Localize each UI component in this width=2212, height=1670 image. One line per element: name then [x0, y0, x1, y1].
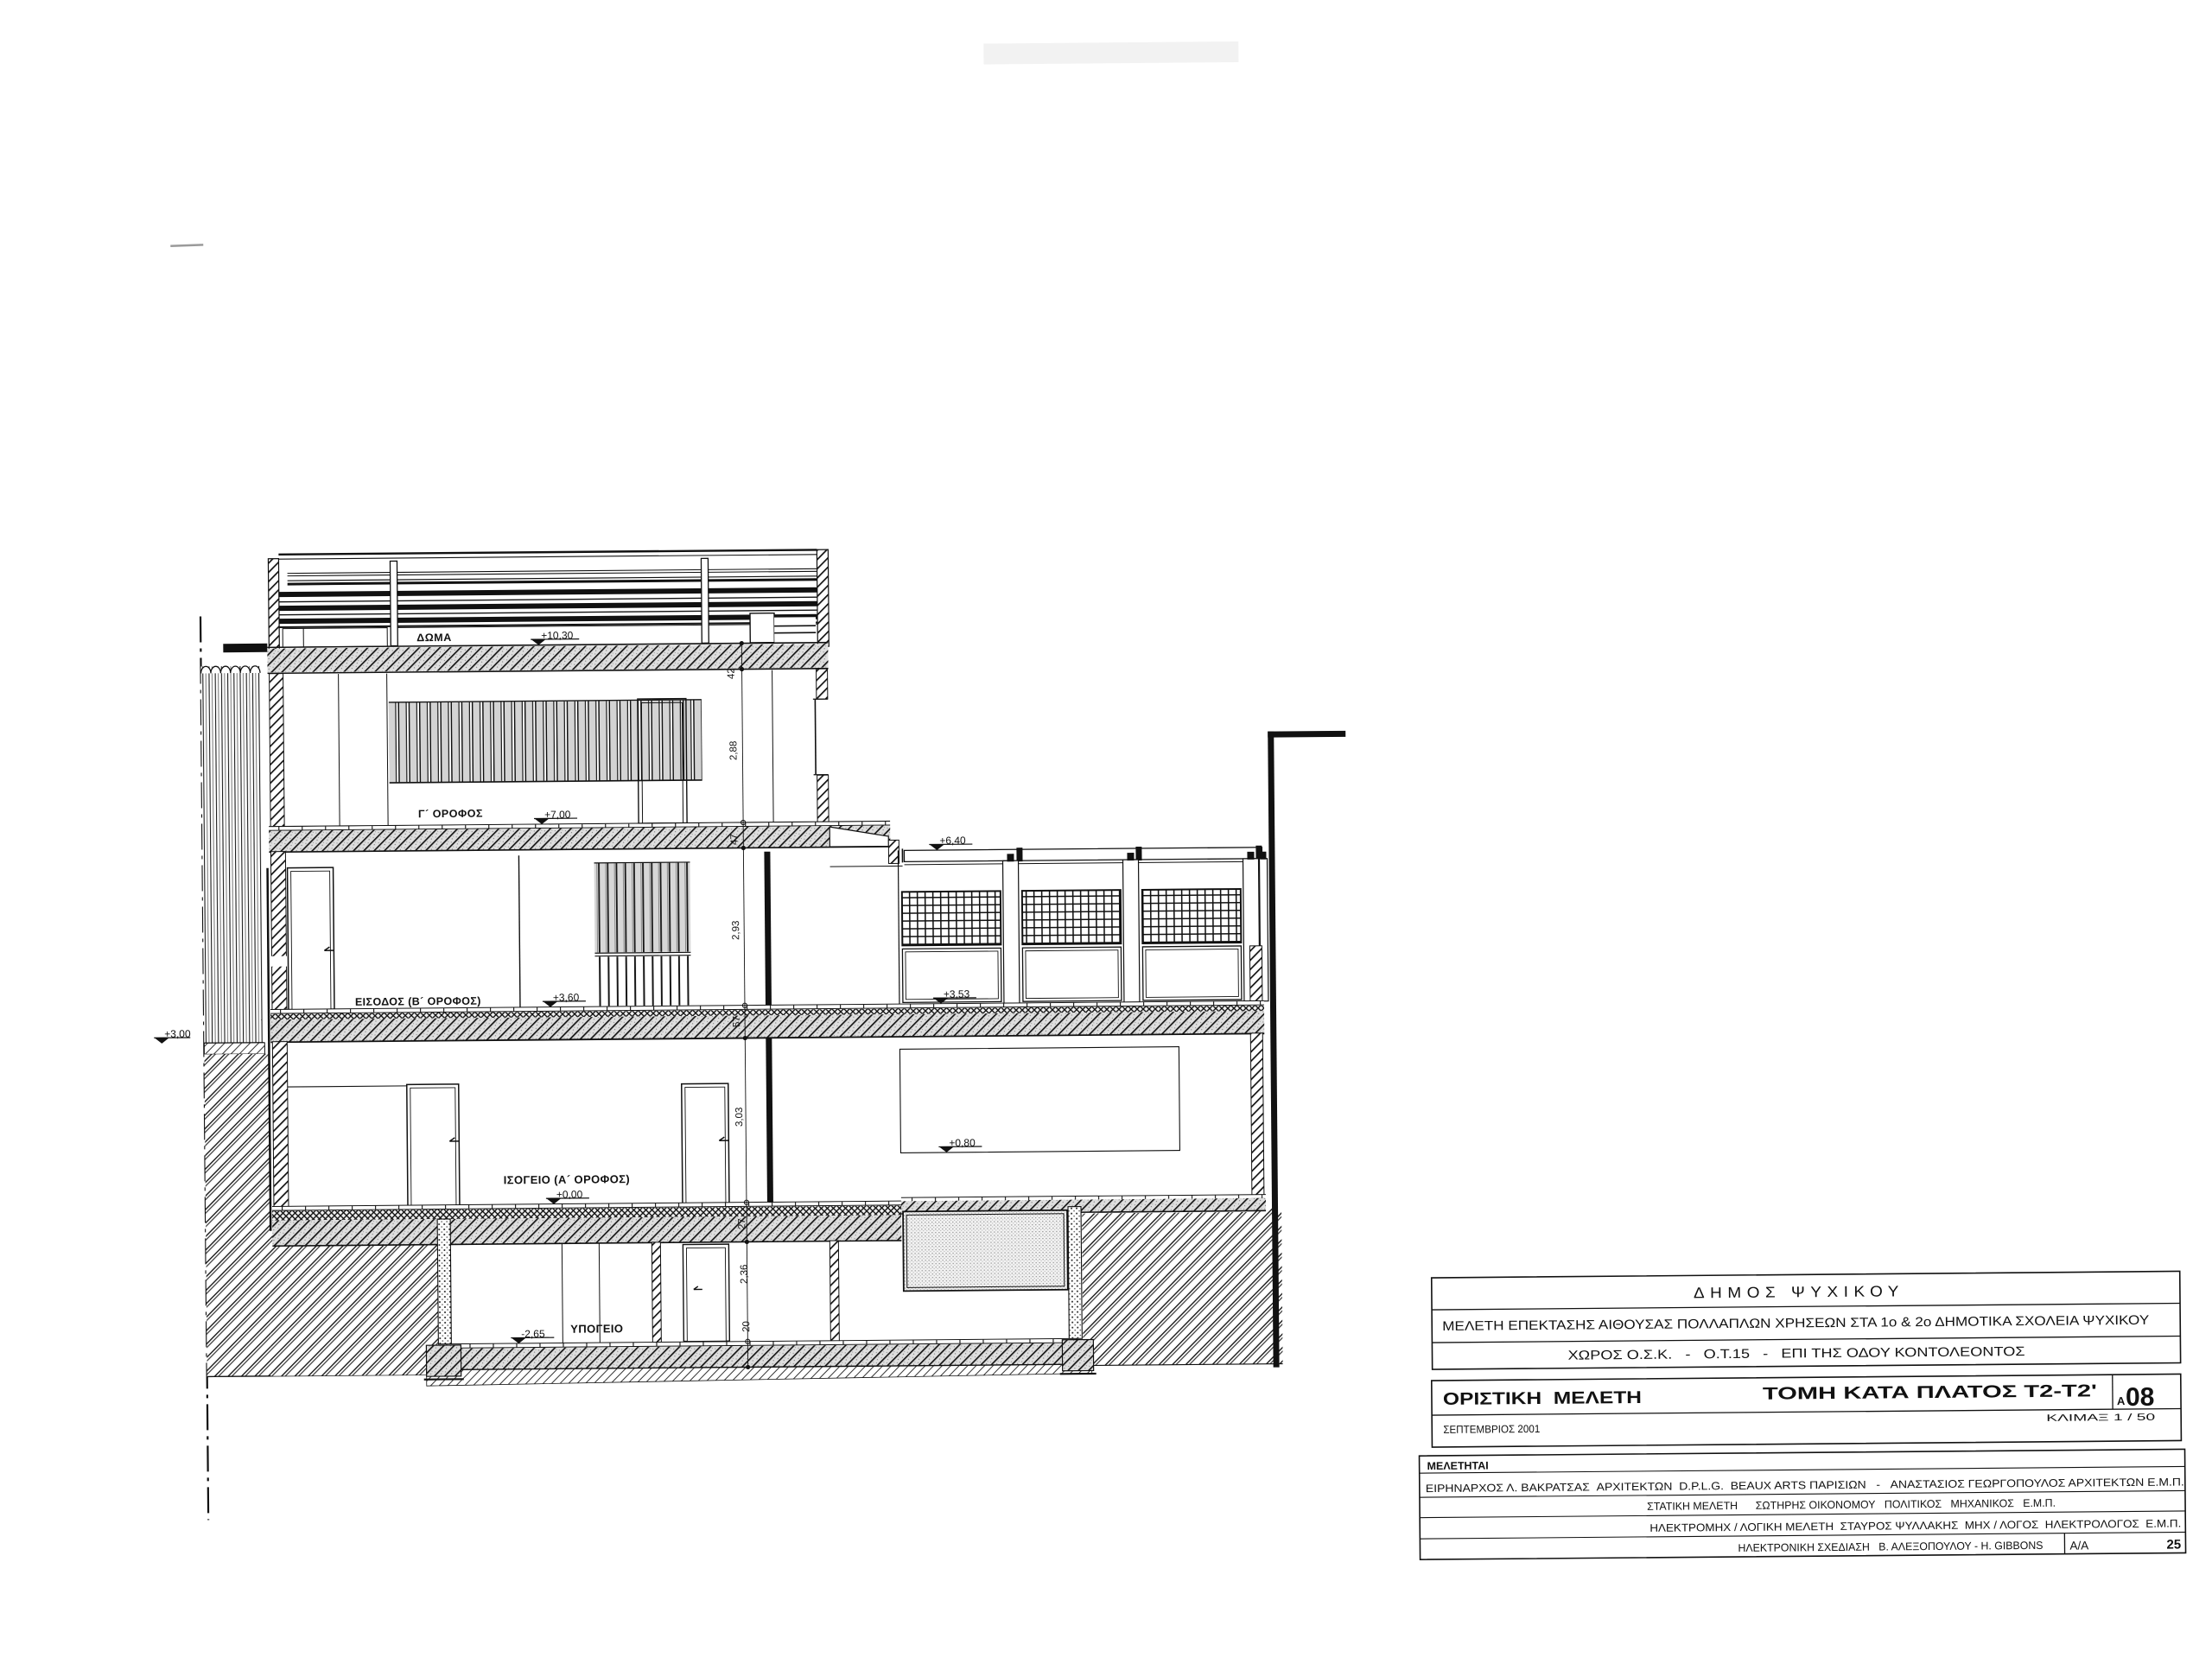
svg-text:ΙΣΟΓΕΙΟ (Α´ ΟΡΟΦΟΣ): ΙΣΟΓΕΙΟ (Α´ ΟΡΟΦΟΣ) [504, 1172, 631, 1186]
svg-text:ΕΙΣΟΔΟΣ (Β´ ΟΡΟΦΟΣ): ΕΙΣΟΔΟΣ (Β´ ΟΡΟΦΟΣ) [355, 995, 481, 1008]
svg-text:27: 27 [737, 1218, 747, 1229]
svg-text:08: 08 [2126, 1383, 2155, 1412]
svg-text:A/A: A/A [2069, 1539, 2088, 1552]
svg-text:ΔΗΜΟΣ ΨΥΧΙΚΟΥ: ΔΗΜΟΣ ΨΥΧΙΚΟΥ [1694, 1282, 1904, 1301]
svg-text:20: 20 [741, 1321, 752, 1332]
svg-text:Α: Α [2117, 1394, 2126, 1407]
svg-text:47: 47 [729, 834, 740, 845]
svg-text:ΣΕΠΤΕΜΒΡΙΟΣ 2001: ΣΕΠΤΕΜΒΡΙΟΣ 2001 [1443, 1423, 1540, 1436]
svg-text:2,36: 2,36 [740, 1265, 750, 1284]
svg-text:2,88: 2,88 [728, 741, 739, 760]
svg-text:Γ´ ΟΡΟΦΟΣ: Γ´ ΟΡΟΦΟΣ [418, 808, 483, 821]
svg-text:57: 57 [732, 1016, 742, 1027]
svg-text:3,03: 3,03 [734, 1108, 745, 1127]
svg-text:ΚΛΙΜΑΞ 1 / 50: ΚΛΙΜΑΞ 1 / 50 [2046, 1413, 2155, 1424]
svg-text:2,93: 2,93 [731, 921, 741, 940]
svg-text:25: 25 [2166, 1537, 2181, 1552]
svg-text:ΔΩΜΑ: ΔΩΜΑ [416, 632, 452, 644]
svg-text:ΟΡΙΣΤΙΚΗ ΜΕΛΕΤΗ: ΟΡΙΣΤΙΚΗ ΜΕΛΕΤΗ [1443, 1388, 1642, 1409]
svg-text:ΤΟΜΗ ΚΑΤΑ ΠΛΑΤΟΣ Τ2-Τ2': ΤΟΜΗ ΚΑΤΑ ΠΛΑΤΟΣ Τ2-Τ2' [1763, 1381, 2097, 1403]
svg-text:ΥΠΟΓΕΙΟ: ΥΠΟΓΕΙΟ [570, 1322, 623, 1336]
svg-text:ΜΕΛΕΤΗΤΑΙ: ΜΕΛΕΤΗΤΑΙ [1427, 1459, 1489, 1472]
svg-text:42: 42 [727, 668, 737, 679]
